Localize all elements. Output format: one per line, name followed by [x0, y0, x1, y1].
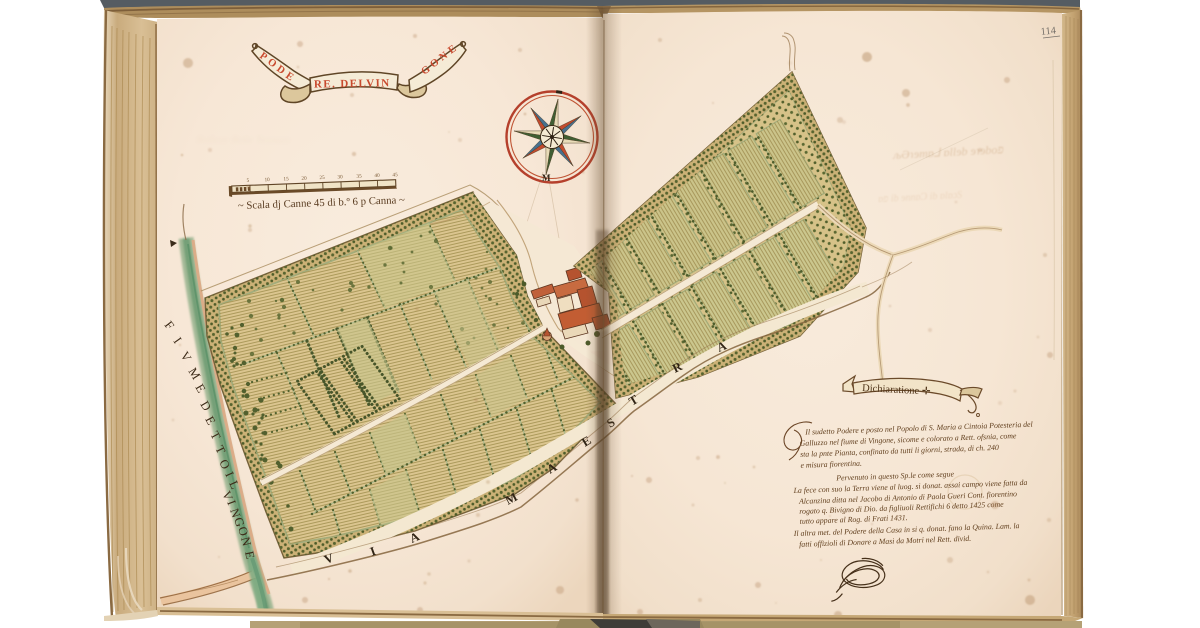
svg-text:114: 114 — [1040, 25, 1057, 38]
svg-text:RE. DELVIN: RE. DELVIN — [314, 77, 391, 90]
svg-text:10: 10 — [264, 177, 270, 183]
svg-text:15: 15 — [283, 176, 289, 182]
svg-text:25: 25 — [319, 175, 325, 181]
svg-text:20: 20 — [301, 176, 307, 182]
svg-text:45: 45 — [392, 172, 398, 178]
svg-text:30: 30 — [337, 174, 343, 180]
svg-text:M: M — [542, 173, 551, 183]
svg-text:40: 40 — [374, 173, 380, 179]
svg-text:35: 35 — [356, 173, 362, 179]
svg-text:Яобеге Яеќе Теггаго: Яобеге Яеќе Теггаго — [195, 134, 291, 146]
